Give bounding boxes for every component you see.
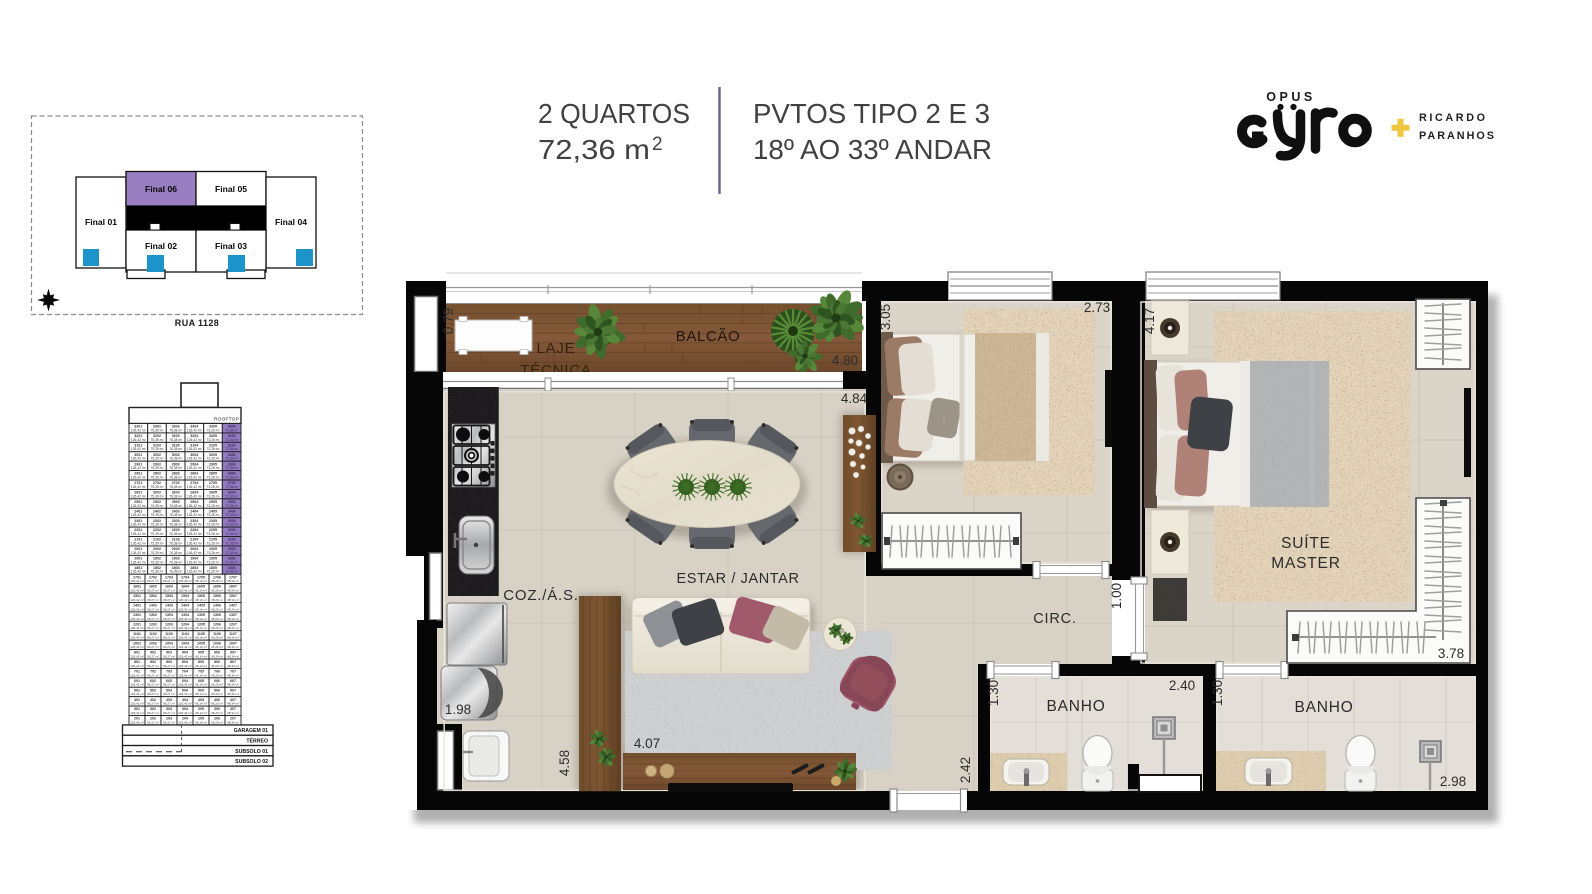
svg-text:75,39 m²: 75,39 m² (150, 457, 164, 461)
svg-text:LAJE: LAJE (536, 340, 575, 357)
svg-text:72,36 m²: 72,36 m² (225, 532, 239, 536)
svg-text:CIRC.: CIRC. (1033, 611, 1076, 627)
svg-text:75,39 m²: 75,39 m² (150, 560, 164, 564)
svg-text:72,36 m²: 72,36 m² (225, 457, 239, 461)
svg-text:126,42 m²: 126,42 m² (131, 560, 147, 564)
svg-text:45,29 m²: 45,29 m² (211, 683, 223, 687)
svg-text:126,42 m²: 126,42 m² (130, 673, 144, 677)
svg-text:126,42 m²: 126,42 m² (130, 692, 144, 696)
svg-text:ESTAR / JANTAR: ESTAR / JANTAR (676, 571, 799, 587)
svg-text:73,26 m²: 73,26 m² (206, 560, 220, 564)
svg-text:73,26 m²: 73,26 m² (206, 457, 220, 461)
svg-text:73,26 m²: 73,26 m² (206, 438, 220, 442)
svg-text:126,42 m²: 126,42 m² (187, 523, 203, 527)
svg-text:126,42 m²: 126,42 m² (130, 589, 144, 593)
svg-text:96,27 m²: 96,27 m² (147, 692, 159, 696)
svg-text:1.30: 1.30 (1210, 680, 1225, 706)
svg-text:45,14 m²: 45,14 m² (195, 636, 207, 640)
svg-text:BANHO: BANHO (1046, 698, 1105, 715)
svg-text:72,36 m²: 72,36 m² (225, 476, 239, 480)
svg-text:MASTER: MASTER (1271, 555, 1340, 572)
svg-text:126,42 m²: 126,42 m² (178, 617, 192, 621)
svg-text:76,38 m²: 76,38 m² (169, 541, 183, 545)
svg-text:96,27 m²: 96,27 m² (163, 598, 175, 602)
svg-text:3.05: 3.05 (878, 304, 893, 330)
svg-text:96,27 m²: 96,27 m² (147, 579, 159, 583)
svg-text:45,29 m²: 45,29 m² (211, 673, 223, 677)
svg-text:RUA 1128: RUA 1128 (175, 318, 219, 328)
svg-text:126,42 m²: 126,42 m² (130, 720, 144, 724)
svg-text:3.78: 3.78 (1438, 646, 1464, 661)
svg-text:45,29 m²: 45,29 m² (211, 598, 223, 602)
svg-text:96,27 m²: 96,27 m² (147, 645, 159, 649)
svg-text:126,42 m²: 126,42 m² (131, 428, 147, 432)
svg-text:126,42 m²: 126,42 m² (131, 570, 147, 574)
svg-text:96,27 m²: 96,27 m² (147, 598, 159, 602)
svg-text:48,34 m²: 48,34 m² (227, 645, 239, 649)
svg-text:126,42 m²: 126,42 m² (187, 513, 203, 517)
svg-text:126,42 m²: 126,42 m² (187, 428, 203, 432)
svg-text:48,34 m²: 48,34 m² (227, 617, 239, 621)
svg-text:SUBSOLO 02: SUBSOLO 02 (235, 759, 268, 765)
svg-text:2.98: 2.98 (1440, 774, 1466, 789)
svg-text:72,36 m²: 72,36 m² (225, 428, 239, 432)
svg-text:2: 2 (652, 134, 663, 155)
svg-text:75,39 m²: 75,39 m² (150, 485, 164, 489)
svg-text:76,38 m²: 76,38 m² (169, 570, 183, 574)
svg-text:126,42 m²: 126,42 m² (130, 598, 144, 602)
svg-text:126,42 m²: 126,42 m² (131, 476, 147, 480)
svg-text:126,42 m²: 126,42 m² (187, 504, 203, 508)
svg-text:75,39 m²: 75,39 m² (150, 476, 164, 480)
svg-text:45,14 m²: 45,14 m² (195, 711, 207, 715)
svg-text:45,29 m²: 45,29 m² (211, 579, 223, 583)
svg-text:48,34 m²: 48,34 m² (227, 711, 239, 715)
svg-text:Final 06: Final 06 (145, 184, 177, 194)
svg-text:73,26 m²: 73,26 m² (206, 523, 220, 527)
svg-text:126,42 m²: 126,42 m² (187, 551, 203, 555)
svg-text:126,42 m²: 126,42 m² (178, 654, 192, 658)
svg-text:126,42 m²: 126,42 m² (187, 541, 203, 545)
svg-text:126,42 m²: 126,42 m² (178, 702, 192, 706)
svg-text:72,36 m²: 72,36 m² (225, 513, 239, 517)
svg-text:48,34 m²: 48,34 m² (227, 579, 239, 583)
svg-text:4.84: 4.84 (841, 391, 868, 406)
svg-text:126,42 m²: 126,42 m² (131, 532, 147, 536)
svg-text:126,42 m²: 126,42 m² (187, 457, 203, 461)
svg-text:126,42 m²: 126,42 m² (131, 494, 147, 498)
svg-text:73,26 m²: 73,26 m² (206, 447, 220, 451)
svg-text:126,42 m²: 126,42 m² (178, 683, 192, 687)
svg-text:126,42 m²: 126,42 m² (131, 457, 147, 461)
svg-text:76,38 m²: 76,38 m² (169, 523, 183, 527)
svg-text:126,42 m²: 126,42 m² (131, 541, 147, 545)
svg-text:126,42 m²: 126,42 m² (131, 447, 147, 451)
svg-text:45,14 m²: 45,14 m² (195, 617, 207, 621)
svg-text:96,27 m²: 96,27 m² (163, 711, 175, 715)
svg-text:126,42 m²: 126,42 m² (178, 720, 192, 724)
svg-text:0.79: 0.79 (441, 308, 456, 334)
svg-text:45,14 m²: 45,14 m² (195, 673, 207, 677)
svg-text:45,14 m²: 45,14 m² (195, 645, 207, 649)
svg-text:76,38 m²: 76,38 m² (169, 457, 183, 461)
svg-text:126,42 m²: 126,42 m² (187, 570, 203, 574)
svg-text:4.80: 4.80 (832, 353, 858, 368)
svg-text:76,38 m²: 76,38 m² (169, 560, 183, 564)
svg-text:126,42 m²: 126,42 m² (131, 485, 147, 489)
svg-text:96,27 m²: 96,27 m² (163, 579, 175, 583)
svg-text:75,39 m²: 75,39 m² (150, 541, 164, 545)
svg-text:RICARDO: RICARDO (1419, 112, 1488, 124)
svg-text:45,29 m²: 45,29 m² (211, 692, 223, 696)
svg-text:45,14 m²: 45,14 m² (195, 607, 207, 611)
svg-text:48,34 m²: 48,34 m² (227, 598, 239, 602)
svg-text:73,26 m²: 73,26 m² (206, 504, 220, 508)
svg-text:45,14 m²: 45,14 m² (195, 654, 207, 658)
svg-text:73,26 m²: 73,26 m² (206, 466, 220, 470)
svg-text:Final 05: Final 05 (215, 184, 247, 194)
svg-text:4.58: 4.58 (557, 750, 572, 776)
svg-text:96,27 m²: 96,27 m² (163, 664, 175, 668)
svg-text:76,38 m²: 76,38 m² (169, 476, 183, 480)
svg-text:72,36 m²: 72,36 m² (225, 541, 239, 545)
svg-text:4.07: 4.07 (634, 736, 660, 751)
svg-text:126,42 m²: 126,42 m² (178, 673, 192, 677)
svg-text:75,39 m²: 75,39 m² (150, 551, 164, 555)
svg-text:73,26 m²: 73,26 m² (206, 551, 220, 555)
svg-text:76,38 m²: 76,38 m² (169, 532, 183, 536)
svg-text:126,42 m²: 126,42 m² (131, 504, 147, 508)
svg-text:96,27 m²: 96,27 m² (163, 673, 175, 677)
svg-text:48,34 m²: 48,34 m² (227, 683, 239, 687)
svg-text:45,29 m²: 45,29 m² (211, 664, 223, 668)
svg-text:96,27 m²: 96,27 m² (147, 626, 159, 630)
svg-text:75,39 m²: 75,39 m² (150, 466, 164, 470)
svg-text:45,14 m²: 45,14 m² (195, 579, 207, 583)
svg-text:96,27 m²: 96,27 m² (163, 617, 175, 621)
svg-text:45,29 m²: 45,29 m² (211, 711, 223, 715)
svg-text:OPUS: OPUS (1266, 90, 1315, 104)
svg-text:48,34 m²: 48,34 m² (227, 664, 239, 668)
svg-text:76,38 m²: 76,38 m² (169, 447, 183, 451)
svg-text:96,27 m²: 96,27 m² (163, 654, 175, 658)
svg-text:126,42 m²: 126,42 m² (130, 683, 144, 687)
svg-text:SUBSOLO 01: SUBSOLO 01 (235, 749, 268, 755)
svg-text:TÉRREO: TÉRREO (246, 737, 268, 745)
svg-text:72,36 m²: 72,36 m² (225, 438, 239, 442)
svg-text:126,42 m²: 126,42 m² (178, 607, 192, 611)
svg-text:126,42 m²: 126,42 m² (131, 513, 147, 517)
svg-text:75,39 m²: 75,39 m² (150, 532, 164, 536)
svg-text:72,36 m²: 72,36 m² (225, 523, 239, 527)
svg-text:2.73: 2.73 (1084, 300, 1110, 315)
svg-text:BALCÃO: BALCÃO (676, 328, 740, 345)
svg-text:45,29 m²: 45,29 m² (211, 607, 223, 611)
svg-text:48,34 m²: 48,34 m² (227, 626, 239, 630)
svg-text:75,39 m²: 75,39 m² (150, 428, 164, 432)
svg-text:96,27 m²: 96,27 m² (163, 692, 175, 696)
svg-text:45,14 m²: 45,14 m² (195, 702, 207, 706)
svg-text:45,29 m²: 45,29 m² (211, 589, 223, 593)
svg-text:126,42 m²: 126,42 m² (178, 598, 192, 602)
svg-text:2 QUARTOS: 2 QUARTOS (538, 98, 690, 129)
svg-text:48,34 m²: 48,34 m² (227, 636, 239, 640)
svg-text:76,38 m²: 76,38 m² (169, 504, 183, 508)
svg-text:96,27 m²: 96,27 m² (147, 673, 159, 677)
svg-text:96,27 m²: 96,27 m² (147, 636, 159, 640)
svg-text:75,39 m²: 75,39 m² (150, 438, 164, 442)
svg-text:96,27 m²: 96,27 m² (147, 654, 159, 658)
svg-text:126,42 m²: 126,42 m² (131, 551, 147, 555)
svg-text:48,34 m²: 48,34 m² (227, 692, 239, 696)
svg-text:1.30: 1.30 (986, 680, 1001, 706)
svg-text:126,42 m²: 126,42 m² (178, 636, 192, 640)
svg-text:2.40: 2.40 (1169, 678, 1195, 693)
svg-text:96,27 m²: 96,27 m² (147, 683, 159, 687)
svg-text:73,26 m²: 73,26 m² (206, 541, 220, 545)
svg-text:96,27 m²: 96,27 m² (147, 607, 159, 611)
svg-text:72,36 m²: 72,36 m² (225, 485, 239, 489)
svg-text:126,42 m²: 126,42 m² (178, 579, 192, 583)
svg-text:72,36 m²: 72,36 m² (225, 570, 239, 574)
svg-text:45,14 m²: 45,14 m² (195, 626, 207, 630)
svg-text:48,34 m²: 48,34 m² (227, 702, 239, 706)
svg-text:BANHO: BANHO (1294, 699, 1353, 716)
svg-text:126,42 m²: 126,42 m² (178, 692, 192, 696)
svg-text:75,39 m²: 75,39 m² (150, 523, 164, 527)
svg-text:126,42 m²: 126,42 m² (131, 523, 147, 527)
svg-text:126,42 m²: 126,42 m² (187, 494, 203, 498)
svg-text:126,42 m²: 126,42 m² (130, 702, 144, 706)
svg-text:COZ./Á.S.: COZ./Á.S. (503, 587, 579, 604)
svg-text:76,38 m²: 76,38 m² (169, 551, 183, 555)
svg-text:126,42 m²: 126,42 m² (187, 447, 203, 451)
svg-text:SUÍTE: SUÍTE (1281, 535, 1331, 552)
svg-text:72,36 m²: 72,36 m² (225, 447, 239, 451)
svg-text:72,36 m: 72,36 m (538, 134, 650, 165)
svg-text:96,27 m²: 96,27 m² (163, 645, 175, 649)
svg-text:73,26 m²: 73,26 m² (206, 532, 220, 536)
svg-text:76,38 m²: 76,38 m² (169, 513, 183, 517)
svg-text:126,42 m²: 126,42 m² (130, 645, 144, 649)
svg-text:72,36 m²: 72,36 m² (225, 551, 239, 555)
svg-text:126,42 m²: 126,42 m² (187, 560, 203, 564)
svg-text:75,39 m²: 75,39 m² (150, 513, 164, 517)
svg-text:126,42 m²: 126,42 m² (130, 711, 144, 715)
svg-text:PARANHOS: PARANHOS (1419, 130, 1496, 142)
svg-text:75,39 m²: 75,39 m² (150, 504, 164, 508)
svg-text:45,29 m²: 45,29 m² (211, 702, 223, 706)
svg-text:96,27 m²: 96,27 m² (147, 664, 159, 668)
svg-text:4.17: 4.17 (1142, 308, 1157, 334)
svg-text:96,27 m²: 96,27 m² (163, 702, 175, 706)
svg-text:45,29 m²: 45,29 m² (211, 626, 223, 630)
svg-text:96,27 m²: 96,27 m² (163, 683, 175, 687)
svg-text:2.42: 2.42 (958, 757, 973, 783)
svg-text:GARAGEM 01: GARAGEM 01 (234, 728, 268, 734)
svg-text:76,38 m²: 76,38 m² (169, 466, 183, 470)
svg-text:126,42 m²: 126,42 m² (130, 654, 144, 658)
svg-text:126,42 m²: 126,42 m² (187, 485, 203, 489)
svg-text:ROOFTOP: ROOFTOP (214, 417, 239, 423)
svg-text:126,42 m²: 126,42 m² (131, 466, 147, 470)
svg-text:73,26 m²: 73,26 m² (206, 570, 220, 574)
svg-text:45,29 m²: 45,29 m² (211, 617, 223, 621)
svg-text:126,42 m²: 126,42 m² (130, 579, 144, 583)
svg-text:72,36 m²: 72,36 m² (225, 466, 239, 470)
svg-text:72,36 m²: 72,36 m² (225, 560, 239, 564)
svg-text:45,14 m²: 45,14 m² (195, 598, 207, 602)
svg-text:73,26 m²: 73,26 m² (206, 494, 220, 498)
svg-text:126,42 m²: 126,42 m² (178, 589, 192, 593)
svg-text:76,38 m²: 76,38 m² (169, 428, 183, 432)
svg-text:45,14 m²: 45,14 m² (195, 664, 207, 668)
svg-text:126,42 m²: 126,42 m² (130, 617, 144, 621)
svg-text:Final 02: Final 02 (145, 241, 177, 251)
svg-text:45,29 m²: 45,29 m² (211, 636, 223, 640)
svg-text:45,14 m²: 45,14 m² (195, 683, 207, 687)
svg-text:Final 04: Final 04 (275, 217, 307, 227)
svg-text:73,26 m²: 73,26 m² (206, 476, 220, 480)
svg-text:96,27 m²: 96,27 m² (147, 711, 159, 715)
svg-text:96,27 m²: 96,27 m² (163, 589, 175, 593)
svg-text:126,42 m²: 126,42 m² (130, 626, 144, 630)
svg-text:126,42 m²: 126,42 m² (178, 711, 192, 715)
svg-text:126,42 m²: 126,42 m² (187, 476, 203, 480)
svg-text:126,42 m²: 126,42 m² (178, 626, 192, 630)
svg-text:45,14 m²: 45,14 m² (195, 589, 207, 593)
svg-text:126,42 m²: 126,42 m² (130, 636, 144, 640)
svg-text:48,34 m²: 48,34 m² (227, 720, 239, 724)
svg-text:45,29 m²: 45,29 m² (211, 654, 223, 658)
svg-text:72,36 m²: 72,36 m² (225, 504, 239, 508)
svg-text:45,14 m²: 45,14 m² (195, 692, 207, 696)
svg-text:18º AO 33º ANDAR: 18º AO 33º ANDAR (753, 134, 992, 165)
svg-text:126,42 m²: 126,42 m² (178, 664, 192, 668)
svg-text:Final 01: Final 01 (85, 217, 117, 227)
svg-text:96,27 m²: 96,27 m² (163, 636, 175, 640)
svg-text:75,39 m²: 75,39 m² (150, 494, 164, 498)
svg-text:96,27 m²: 96,27 m² (163, 720, 175, 724)
svg-text:126,42 m²: 126,42 m² (187, 438, 203, 442)
svg-text:96,27 m²: 96,27 m² (147, 617, 159, 621)
svg-text:45,14 m²: 45,14 m² (195, 720, 207, 724)
svg-text:48,34 m²: 48,34 m² (227, 654, 239, 658)
svg-text:76,38 m²: 76,38 m² (169, 485, 183, 489)
svg-text:45,29 m²: 45,29 m² (211, 720, 223, 724)
svg-text:126,42 m²: 126,42 m² (178, 645, 192, 649)
svg-text:1.98: 1.98 (445, 702, 471, 717)
svg-text:96,27 m²: 96,27 m² (163, 607, 175, 611)
svg-text:96,27 m²: 96,27 m² (147, 720, 159, 724)
svg-text:73,26 m²: 73,26 m² (206, 485, 220, 489)
svg-text:75,39 m²: 75,39 m² (150, 447, 164, 451)
svg-text:73,26 m²: 73,26 m² (206, 513, 220, 517)
svg-text:126,42 m²: 126,42 m² (131, 438, 147, 442)
svg-text:72,36 m²: 72,36 m² (225, 494, 239, 498)
svg-text:76,38 m²: 76,38 m² (169, 438, 183, 442)
svg-text:73,26 m²: 73,26 m² (206, 428, 220, 432)
svg-text:1.00: 1.00 (1109, 583, 1124, 609)
svg-text:48,34 m²: 48,34 m² (227, 589, 239, 593)
svg-text:126,42 m²: 126,42 m² (187, 466, 203, 470)
svg-text:76,38 m²: 76,38 m² (169, 494, 183, 498)
svg-text:75,39 m²: 75,39 m² (150, 570, 164, 574)
svg-text:96,27 m²: 96,27 m² (147, 589, 159, 593)
svg-text:126,42 m²: 126,42 m² (187, 532, 203, 536)
svg-text:96,27 m²: 96,27 m² (147, 702, 159, 706)
svg-text:PVTOS TIPO 2 E 3: PVTOS TIPO 2 E 3 (753, 98, 990, 129)
svg-text:48,34 m²: 48,34 m² (227, 673, 239, 677)
svg-text:45,29 m²: 45,29 m² (211, 645, 223, 649)
svg-text:126,42 m²: 126,42 m² (130, 607, 144, 611)
svg-text:Final 03: Final 03 (215, 241, 247, 251)
svg-text:96,27 m²: 96,27 m² (163, 626, 175, 630)
svg-text:126,42 m²: 126,42 m² (130, 664, 144, 668)
svg-text:48,34 m²: 48,34 m² (227, 607, 239, 611)
